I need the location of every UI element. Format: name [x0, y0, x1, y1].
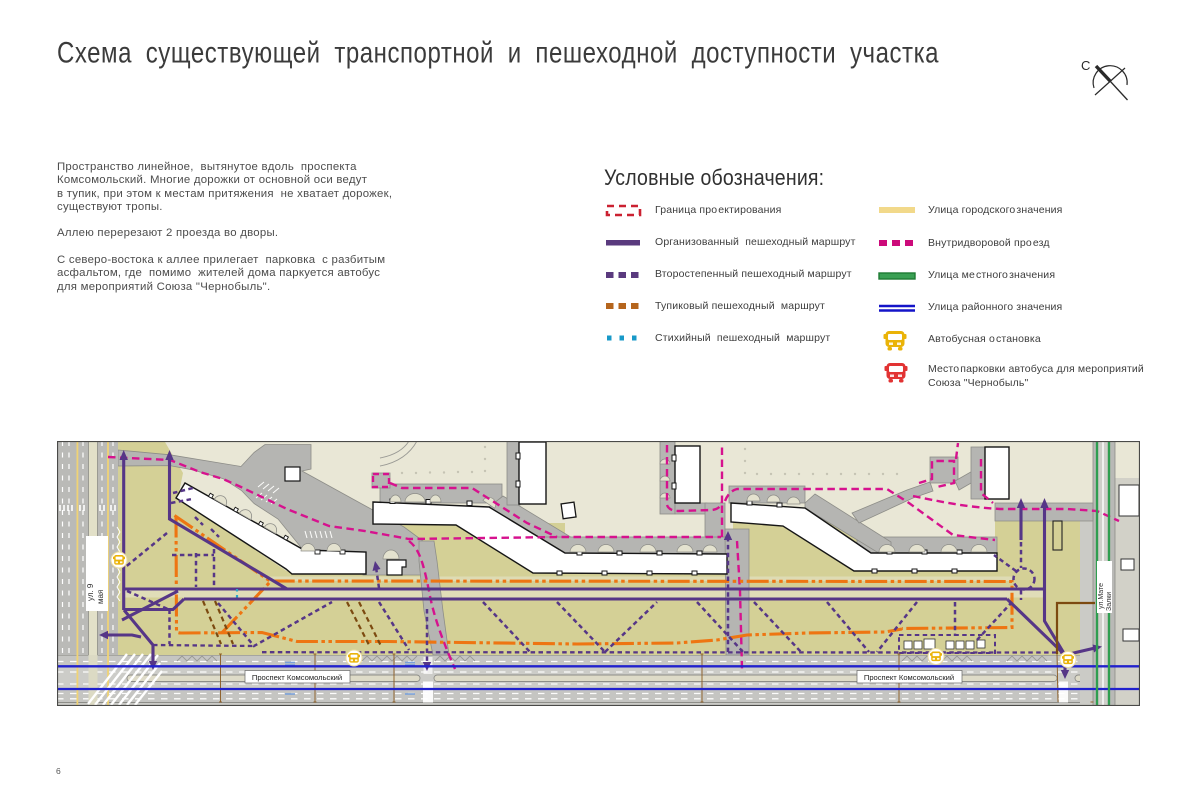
svg-text:Проспект Комсомольский: Проспект Комсомольский	[252, 673, 342, 682]
svg-text:ул.Мате: ул.Мате	[1098, 583, 1105, 609]
svg-text:Залки: Залки	[1106, 592, 1113, 611]
svg-text:Проспект Комсомольский: Проспект Комсомольский	[864, 673, 954, 682]
svg-text:ул. 9: ул. 9	[86, 583, 95, 601]
svg-text:С: С	[1081, 58, 1090, 73]
svg-text:мая: мая	[96, 590, 105, 604]
